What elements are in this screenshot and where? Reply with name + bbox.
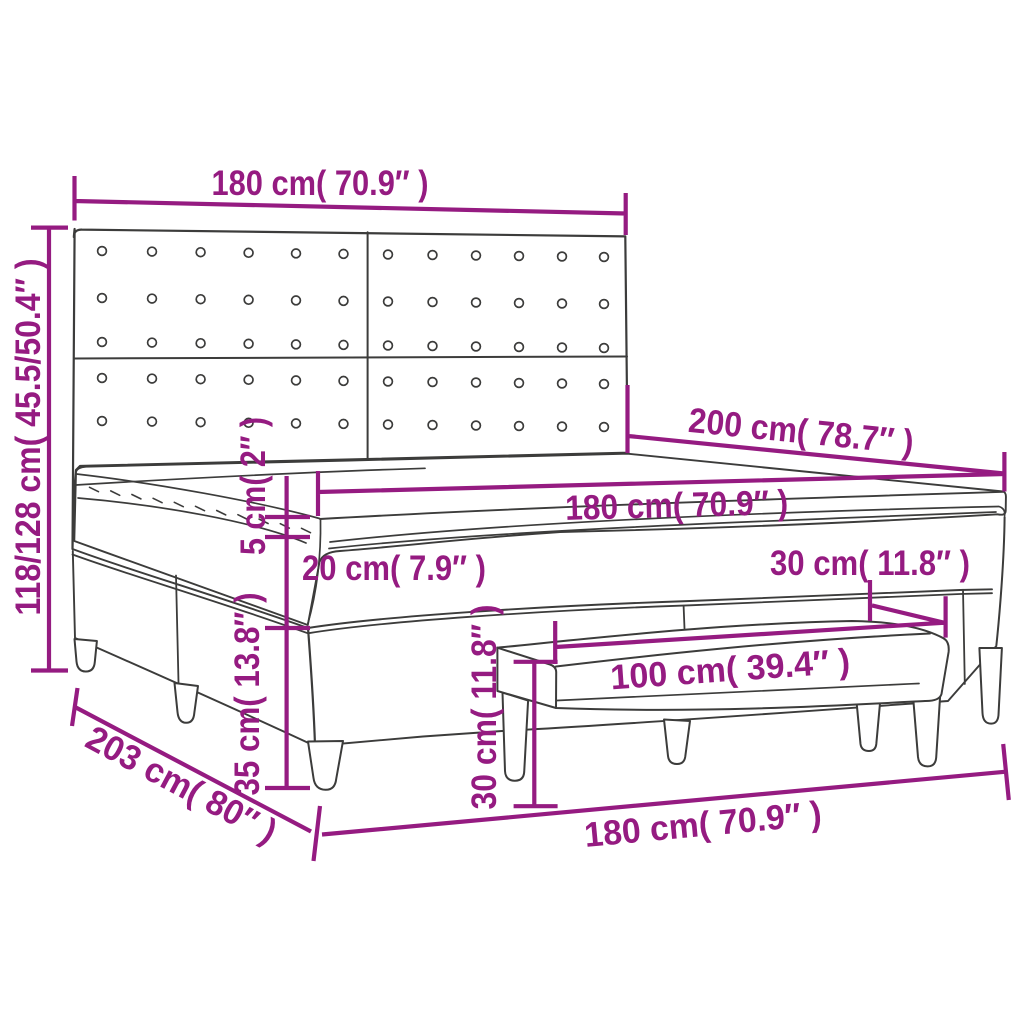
svg-text:30 cm( 11.8″ ): 30 cm( 11.8″ ) bbox=[770, 544, 970, 583]
svg-text:35 cm( 13.8″ ): 35 cm( 13.8″ ) bbox=[228, 593, 267, 796]
svg-text:118/128 cm( 45.5/50.4″ ): 118/128 cm( 45.5/50.4″ ) bbox=[9, 259, 48, 616]
svg-text:30 cm( 11.8″ ): 30 cm( 11.8″ ) bbox=[465, 605, 504, 810]
svg-text:180 cm( 70.9″ ): 180 cm( 70.9″ ) bbox=[212, 164, 429, 203]
svg-text:180 cm( 70.9″ ): 180 cm( 70.9″ ) bbox=[565, 483, 789, 528]
svg-text:20 cm( 7.9″ ): 20 cm( 7.9″ ) bbox=[302, 549, 486, 588]
svg-text:5 cm( 2″ ): 5 cm( 2″ ) bbox=[234, 417, 273, 555]
